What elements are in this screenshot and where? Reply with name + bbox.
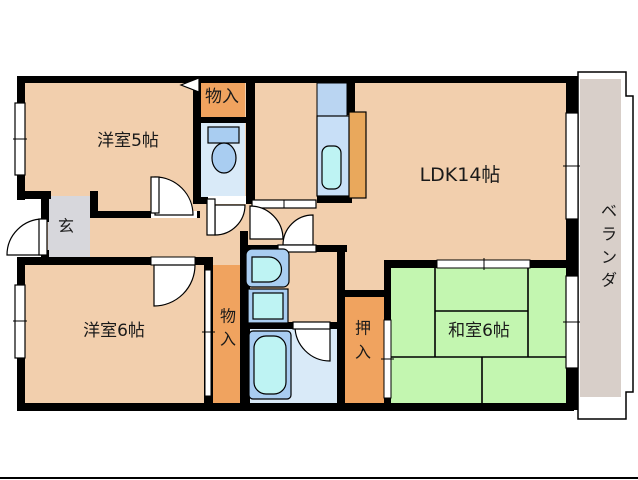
label-western5: 洋室5帖: [97, 131, 159, 151]
wall-washroom-right: [337, 245, 345, 403]
label-oshiire-1: 押: [355, 319, 371, 338]
wall-top: [17, 76, 574, 83]
toilet-bowl: [212, 143, 236, 173]
kitchen-range-unit: [349, 112, 366, 198]
wall-genkan-right: [90, 191, 98, 218]
floorplan-image: 洋室5帖 物入 LDK14帖 玄 洋室6帖 和室6帖 物 入 押 入 ベ ラ ン…: [0, 0, 638, 480]
label-veranda-1: ベ: [601, 202, 617, 221]
label-veranda-2: ラ: [601, 225, 617, 244]
wall-toilet-bottom-stub: [193, 197, 208, 204]
label-storage-bottom-2: 入: [220, 330, 236, 349]
label-japanese: 和室6帖: [448, 321, 510, 341]
label-entry: 玄: [58, 217, 74, 236]
veranda: [578, 72, 633, 419]
floorplan-svg: 洋室5帖 物入 LDK14帖 玄 洋室6帖 和室6帖 物 入 押 入 ベ ラ ン…: [0, 0, 638, 480]
wall-junction-stub: [240, 231, 248, 245]
wall-bottom: [17, 403, 574, 411]
label-western6: 洋室6帖: [83, 321, 145, 341]
wall-oshiire-top: [345, 290, 384, 297]
wall-toilet-right: [246, 76, 255, 204]
room5-door-leaf: [151, 177, 159, 213]
washing-machine-drum: [253, 293, 283, 319]
entrance-door-leaf: [39, 219, 47, 255]
kitchen-sink: [322, 146, 341, 189]
bathtub-basin: [254, 336, 286, 394]
label-storage-top: 物入: [205, 87, 239, 107]
bath-door-leaf: [293, 322, 330, 329]
label-veranda-4: ダ: [601, 271, 617, 290]
toilet-door-leaf: [207, 199, 215, 235]
room6-door-leaf: [151, 257, 195, 265]
image-bottom-border: [0, 477, 638, 479]
storage-bottom-sliding-door: [205, 270, 211, 396]
wall-genkan-left-upper: [41, 196, 49, 222]
label-veranda-3: ン: [601, 248, 617, 267]
wall-kitchen-right-stub: [347, 83, 355, 115]
toilet-tank: [208, 127, 239, 143]
wall-closet-left: [193, 76, 201, 204]
label-oshiire-2: 入: [355, 343, 371, 362]
kitchen-upper-unit: [317, 83, 347, 116]
label-ldk: LDK14帖: [420, 164, 501, 186]
washbasin-bowl: [252, 257, 282, 282]
wall-closet-toilet-divider: [193, 117, 246, 123]
label-storage-bottom-1: 物: [220, 307, 236, 326]
